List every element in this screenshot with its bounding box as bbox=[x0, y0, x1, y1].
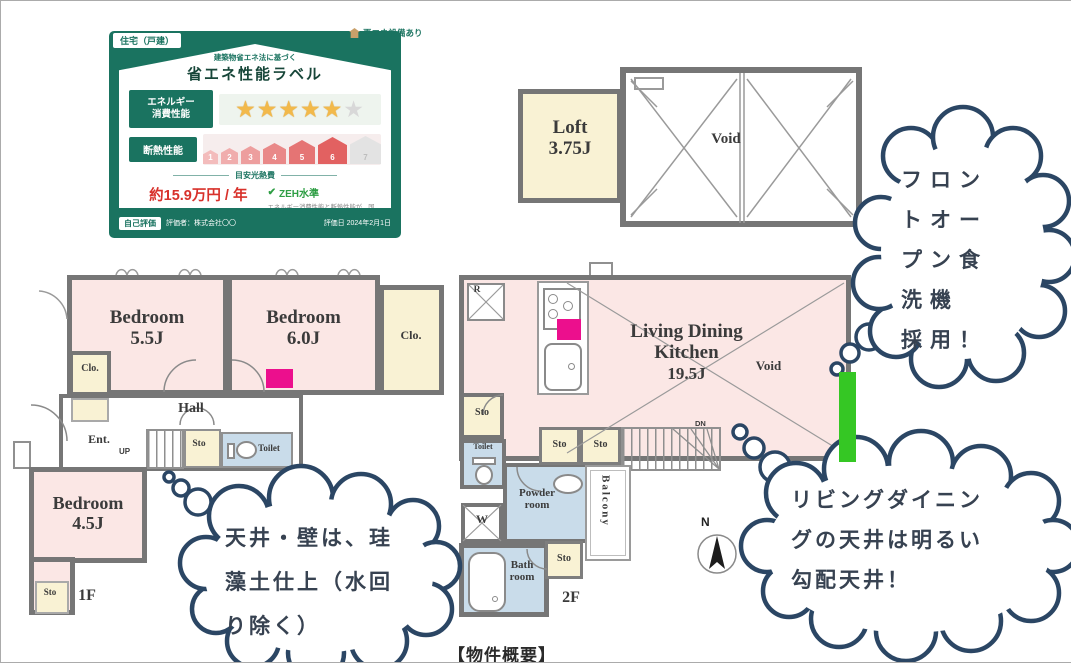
house-scale-icon: 1 bbox=[203, 150, 218, 164]
balcony-label: Balcony bbox=[599, 475, 611, 527]
storage-1f-label: Sto bbox=[32, 587, 68, 597]
washer-label: W bbox=[465, 513, 499, 526]
storage-b2-label: Sto bbox=[582, 439, 619, 450]
storage-hall-label: Sto bbox=[182, 439, 216, 450]
void-2f-label: Void bbox=[741, 359, 796, 374]
eval-date: 評価日 2024年2月1日 bbox=[324, 218, 391, 228]
loft-label: Loft3.75J bbox=[520, 117, 620, 160]
closet-left-label: Clo. bbox=[71, 363, 109, 374]
room-storage-1f bbox=[35, 581, 69, 614]
entrance-label: Ent. bbox=[77, 433, 121, 446]
energy-label-card: 住宅（戸建） 再エネ設備あり 建築物省エネ法に基づく 省エネ性能ラベル エネルギ… bbox=[109, 31, 401, 238]
zeh-label: ZEH水準 bbox=[279, 185, 319, 200]
stairs-up bbox=[146, 429, 184, 469]
stars-filled-icon: ★★★★★ bbox=[235, 96, 343, 122]
toilet-2f-label: Toilet bbox=[464, 443, 502, 452]
insulation-row: 断熱性能 1 2 3 4 5 6 7 bbox=[129, 134, 381, 165]
storage-2f-left-label: Sto bbox=[462, 407, 502, 418]
north-label: N bbox=[701, 515, 731, 529]
porch-step bbox=[13, 441, 31, 469]
balcony: Balcony bbox=[585, 465, 631, 561]
energy-row-label: エネルギー 消費性能 bbox=[129, 90, 213, 128]
energy-row: エネルギー 消費性能 ★★★★★★ bbox=[129, 90, 381, 128]
storage-mid-label: Sto bbox=[547, 553, 581, 564]
star-empty-icon: ★ bbox=[343, 96, 365, 122]
house-scale-icon: 5 bbox=[289, 140, 315, 164]
roof-hatch-box bbox=[634, 77, 664, 90]
house-scale-icon: 2 bbox=[221, 148, 238, 164]
renewable-chip: 再エネ設備あり bbox=[349, 27, 423, 39]
card-housing-tab: 住宅（戸建） bbox=[113, 33, 181, 48]
house-scale-icon: 6 bbox=[318, 137, 347, 164]
house-scale-icon: 7 bbox=[350, 136, 381, 164]
stairs-down bbox=[621, 427, 721, 471]
toilet-tank-icon bbox=[472, 457, 496, 465]
floorplan-flyer: 住宅（戸建） 再エネ設備あり 建築物省エネ法に基づく 省エネ性能ラベル エネルギ… bbox=[0, 0, 1071, 663]
up-label: UP bbox=[119, 447, 143, 456]
entrance-step bbox=[71, 398, 109, 422]
void-roof-label: Void bbox=[696, 131, 756, 148]
floor2-label: 2F bbox=[551, 589, 591, 607]
star-rating: ★★★★★★ bbox=[219, 94, 381, 125]
cost-heading: 目安光熱費 bbox=[119, 170, 391, 181]
sink-icon bbox=[544, 343, 582, 391]
annual-cost: 約15.9万円 / 年 bbox=[129, 184, 268, 205]
zeh-row: ✔ ZEH水準 bbox=[268, 185, 381, 200]
hall-label: Hall bbox=[161, 401, 221, 417]
closet-right-label: Clo. bbox=[381, 329, 441, 342]
toilet-bowl-icon bbox=[475, 465, 493, 485]
powder-label: Powderroom bbox=[507, 487, 567, 512]
magenta-marker-2f bbox=[557, 319, 581, 340]
dn-label: DN bbox=[695, 419, 719, 428]
page-caption: 【物件概要】 bbox=[448, 641, 628, 663]
insulation-row-label: 断熱性能 bbox=[129, 137, 197, 162]
toilet-1f-label: Toilet bbox=[249, 443, 289, 453]
card-subtitle: 建築物省エネ法に基づく bbox=[119, 52, 391, 63]
bedroom-55-label: Bedroom5.5J bbox=[71, 307, 223, 350]
card-panel: 建築物省エネ法に基づく 省エネ性能ラベル エネルギー 消費性能 ★★★★★★ 断… bbox=[119, 44, 391, 208]
callout-dishwasher: フロン トオー プン食 洗機 採用！ bbox=[901, 161, 1011, 361]
self-eval-badge: 自己評価 bbox=[119, 217, 161, 230]
callout-wall-finish: 天井・壁は、珪 藻土仕上（水回 り除く） bbox=[225, 517, 440, 649]
storage-b1-label: Sto bbox=[541, 439, 578, 450]
house-scale-icon: 4 bbox=[263, 143, 286, 164]
floor1-label: 1F bbox=[67, 587, 107, 605]
house-scale-icon: 3 bbox=[241, 146, 260, 164]
house-icon bbox=[349, 28, 360, 38]
compass-icon bbox=[698, 535, 736, 573]
card-footer: 自己評価 評価者：株式会社〇〇 評価日 2024年2月1日 bbox=[119, 212, 391, 234]
callout-ceiling: リビングダイニン グの天井は明るい 勾配天井！ bbox=[791, 481, 1021, 601]
card-title: 省エネ性能ラベル bbox=[119, 63, 391, 84]
evaluator-text: 評価者：株式会社〇〇 bbox=[166, 218, 236, 228]
insulation-scale: 1 2 3 4 5 6 7 bbox=[203, 134, 381, 165]
magenta-marker-1f bbox=[266, 369, 293, 388]
room-bedroom-45-nook bbox=[29, 557, 75, 615]
bedroom-60-label: Bedroom6.0J bbox=[231, 307, 376, 350]
check-icon: ✔ bbox=[268, 187, 276, 198]
fridge-label: R bbox=[470, 285, 484, 296]
bath-label: Bathroom bbox=[499, 559, 545, 584]
toilet-tank-icon bbox=[227, 443, 235, 459]
bedroom-45-label: Bedroom4.5J bbox=[33, 493, 143, 533]
green-marker-2f bbox=[839, 372, 856, 462]
